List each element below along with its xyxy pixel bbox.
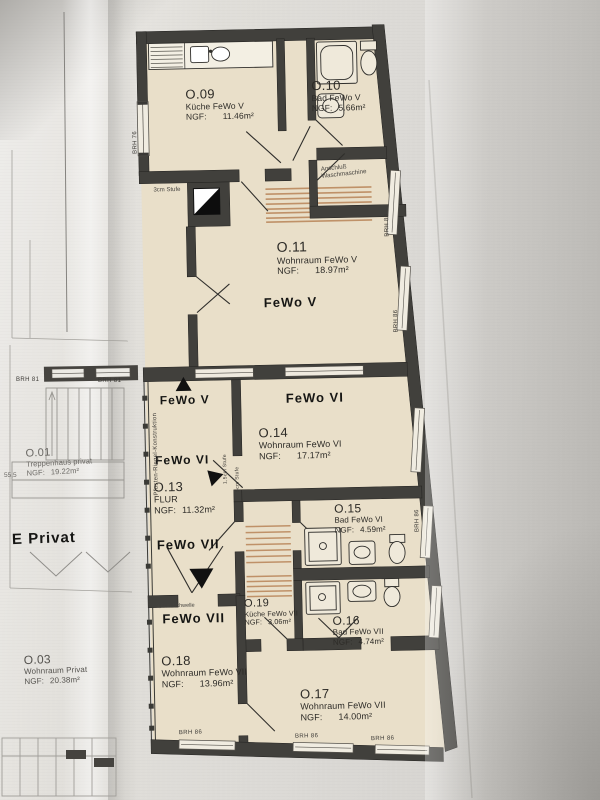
table-corner-shade xyxy=(430,520,600,800)
room-label-o15: O.15 Bad FeWo VI NGF:4.59m² xyxy=(334,501,386,535)
kitchen-counter-icon xyxy=(148,41,273,70)
note-schwelle: 3,5cm Schwelle xyxy=(156,603,195,610)
room-label-o09: O.09 Küche FeWo V NGF:11.46m² xyxy=(185,85,254,122)
zone-label-fewo7: FeWo VII xyxy=(162,610,225,627)
room-label-o16: O.16 Bad FeWo VII NGF:4.74m² xyxy=(332,613,384,647)
window-label-brh86-r3: BRH 86 xyxy=(414,509,422,532)
zone-dir-fewo5: FeWo V xyxy=(160,392,210,407)
room-label-o03: O.03 Wohnraum Privat NGF:20.38m² xyxy=(23,651,87,686)
column-marker-icon xyxy=(193,188,220,215)
stairwell-sketch xyxy=(12,388,124,498)
note-15cm-stufe: 1,5cm Stufe xyxy=(223,454,230,484)
window-label-brh86-r1: BRH 86 xyxy=(384,214,392,237)
room-label-o18: O.18 Wohnraum FeWo VII NGF:13.96m² xyxy=(161,652,247,690)
window-label-brh81-b: BRH 81 xyxy=(98,378,121,385)
page-border-line xyxy=(64,12,67,332)
toilet-icon-bath6 xyxy=(389,534,406,563)
shower-icon-bath7 xyxy=(306,582,341,615)
window-bottom-1 xyxy=(179,740,235,750)
room-label-o17: O.17 Wohnraum FeWo VII NGF:14.00m² xyxy=(300,685,386,723)
note-5cm-stufe: 5cm Stufe xyxy=(235,467,241,492)
room-label-o11: O.11 Wohnraum FeWo V NGF:18.97m² xyxy=(276,237,357,276)
room-label-o19: O.19 Küche FeWo VII NGF:3.06m² xyxy=(244,597,298,628)
note-3cm-stufe: 3cm Stufe xyxy=(153,187,180,195)
window-label-brh76: BRH 76 xyxy=(132,131,140,154)
zone-dir-fewo6: FeWo VI xyxy=(155,452,209,467)
apartment-floorplan: O.09 Küche FeWo V NGF:11.46m² O.10 Bad F… xyxy=(128,19,459,770)
stairwell-window-wall xyxy=(44,365,138,382)
toilet-icon-bath5 xyxy=(360,41,377,75)
window-label-brh86-b1: BRH 86 xyxy=(179,730,203,738)
window-bottom-2 xyxy=(293,742,353,752)
stair-door-swings xyxy=(30,552,130,576)
room-label-o14: O.14 Wohnraum FeWo VI NGF:17.17m² xyxy=(258,424,342,462)
window-bottom-3 xyxy=(375,745,429,755)
floorplan-photo: O.09 Küche FeWo V NGF:11.46m² O.10 Bad F… xyxy=(0,0,600,800)
zone-label-e-privat: E Privat xyxy=(12,529,76,549)
room-label-o10: O.10 Bad FeWo V NGF:5.66m² xyxy=(311,77,366,113)
dimension-label: 55,5 xyxy=(4,472,17,480)
window-label-brh86-b2: BRH 86 xyxy=(295,733,319,741)
sink-icon-bath7 xyxy=(348,581,376,602)
room-label-o13: O.13 FLUR NGF:11.32m² xyxy=(154,478,216,516)
window-label-brh86-b3: BRH 86 xyxy=(371,736,395,744)
toilet-icon-bath7 xyxy=(384,578,401,606)
terrace-sketch xyxy=(2,738,116,796)
zone-label-fewo6: FeWo VI xyxy=(286,390,344,407)
window-label-brh86-r2: BRH 86 xyxy=(393,310,401,333)
sink-icon-bath6 xyxy=(349,541,375,565)
window-label-brh81-a: BRH 81 xyxy=(16,377,39,384)
zone-dir-fewo7: FeWo VII xyxy=(157,536,220,553)
zone-label-fewo5: FeWo V xyxy=(264,294,318,310)
room-label-o01: O.01 Treppenhaus privat NGF:19.22m² xyxy=(25,444,93,478)
